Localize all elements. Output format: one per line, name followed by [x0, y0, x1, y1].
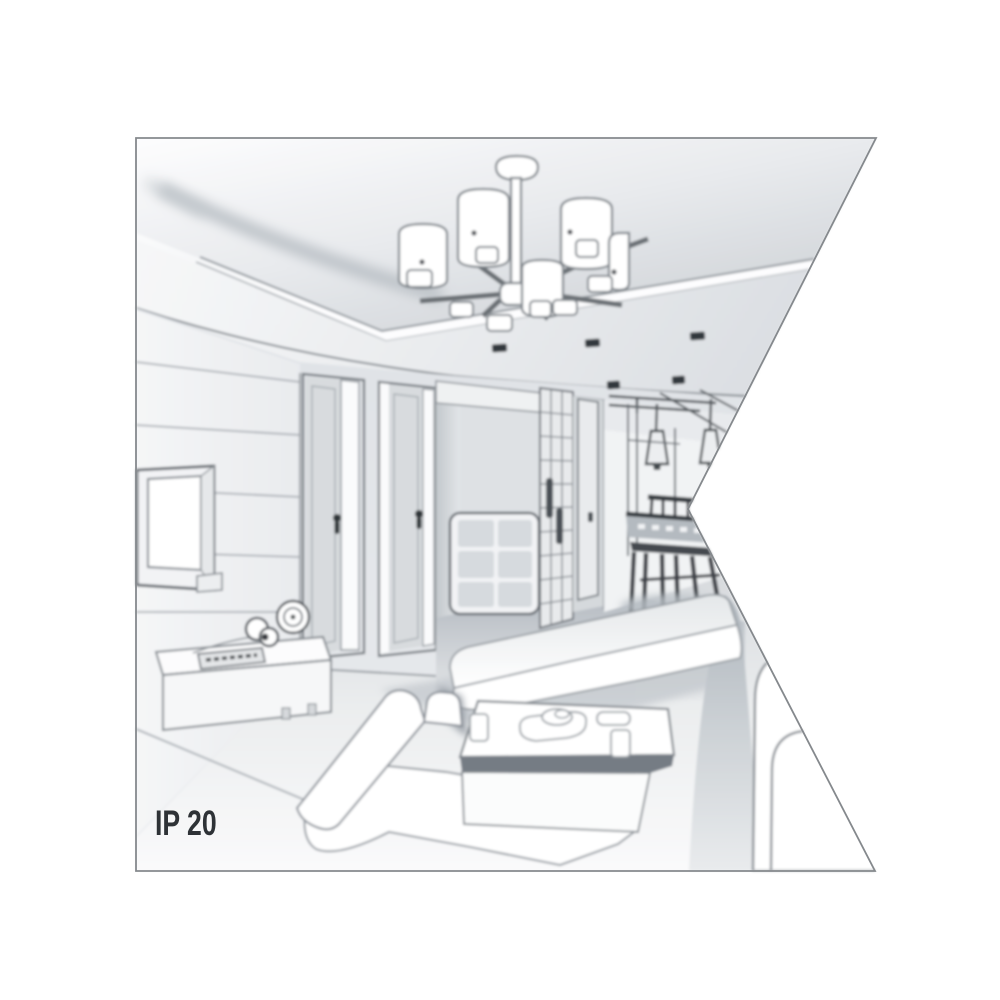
- svg-text:IP 20: IP 20: [155, 803, 217, 842]
